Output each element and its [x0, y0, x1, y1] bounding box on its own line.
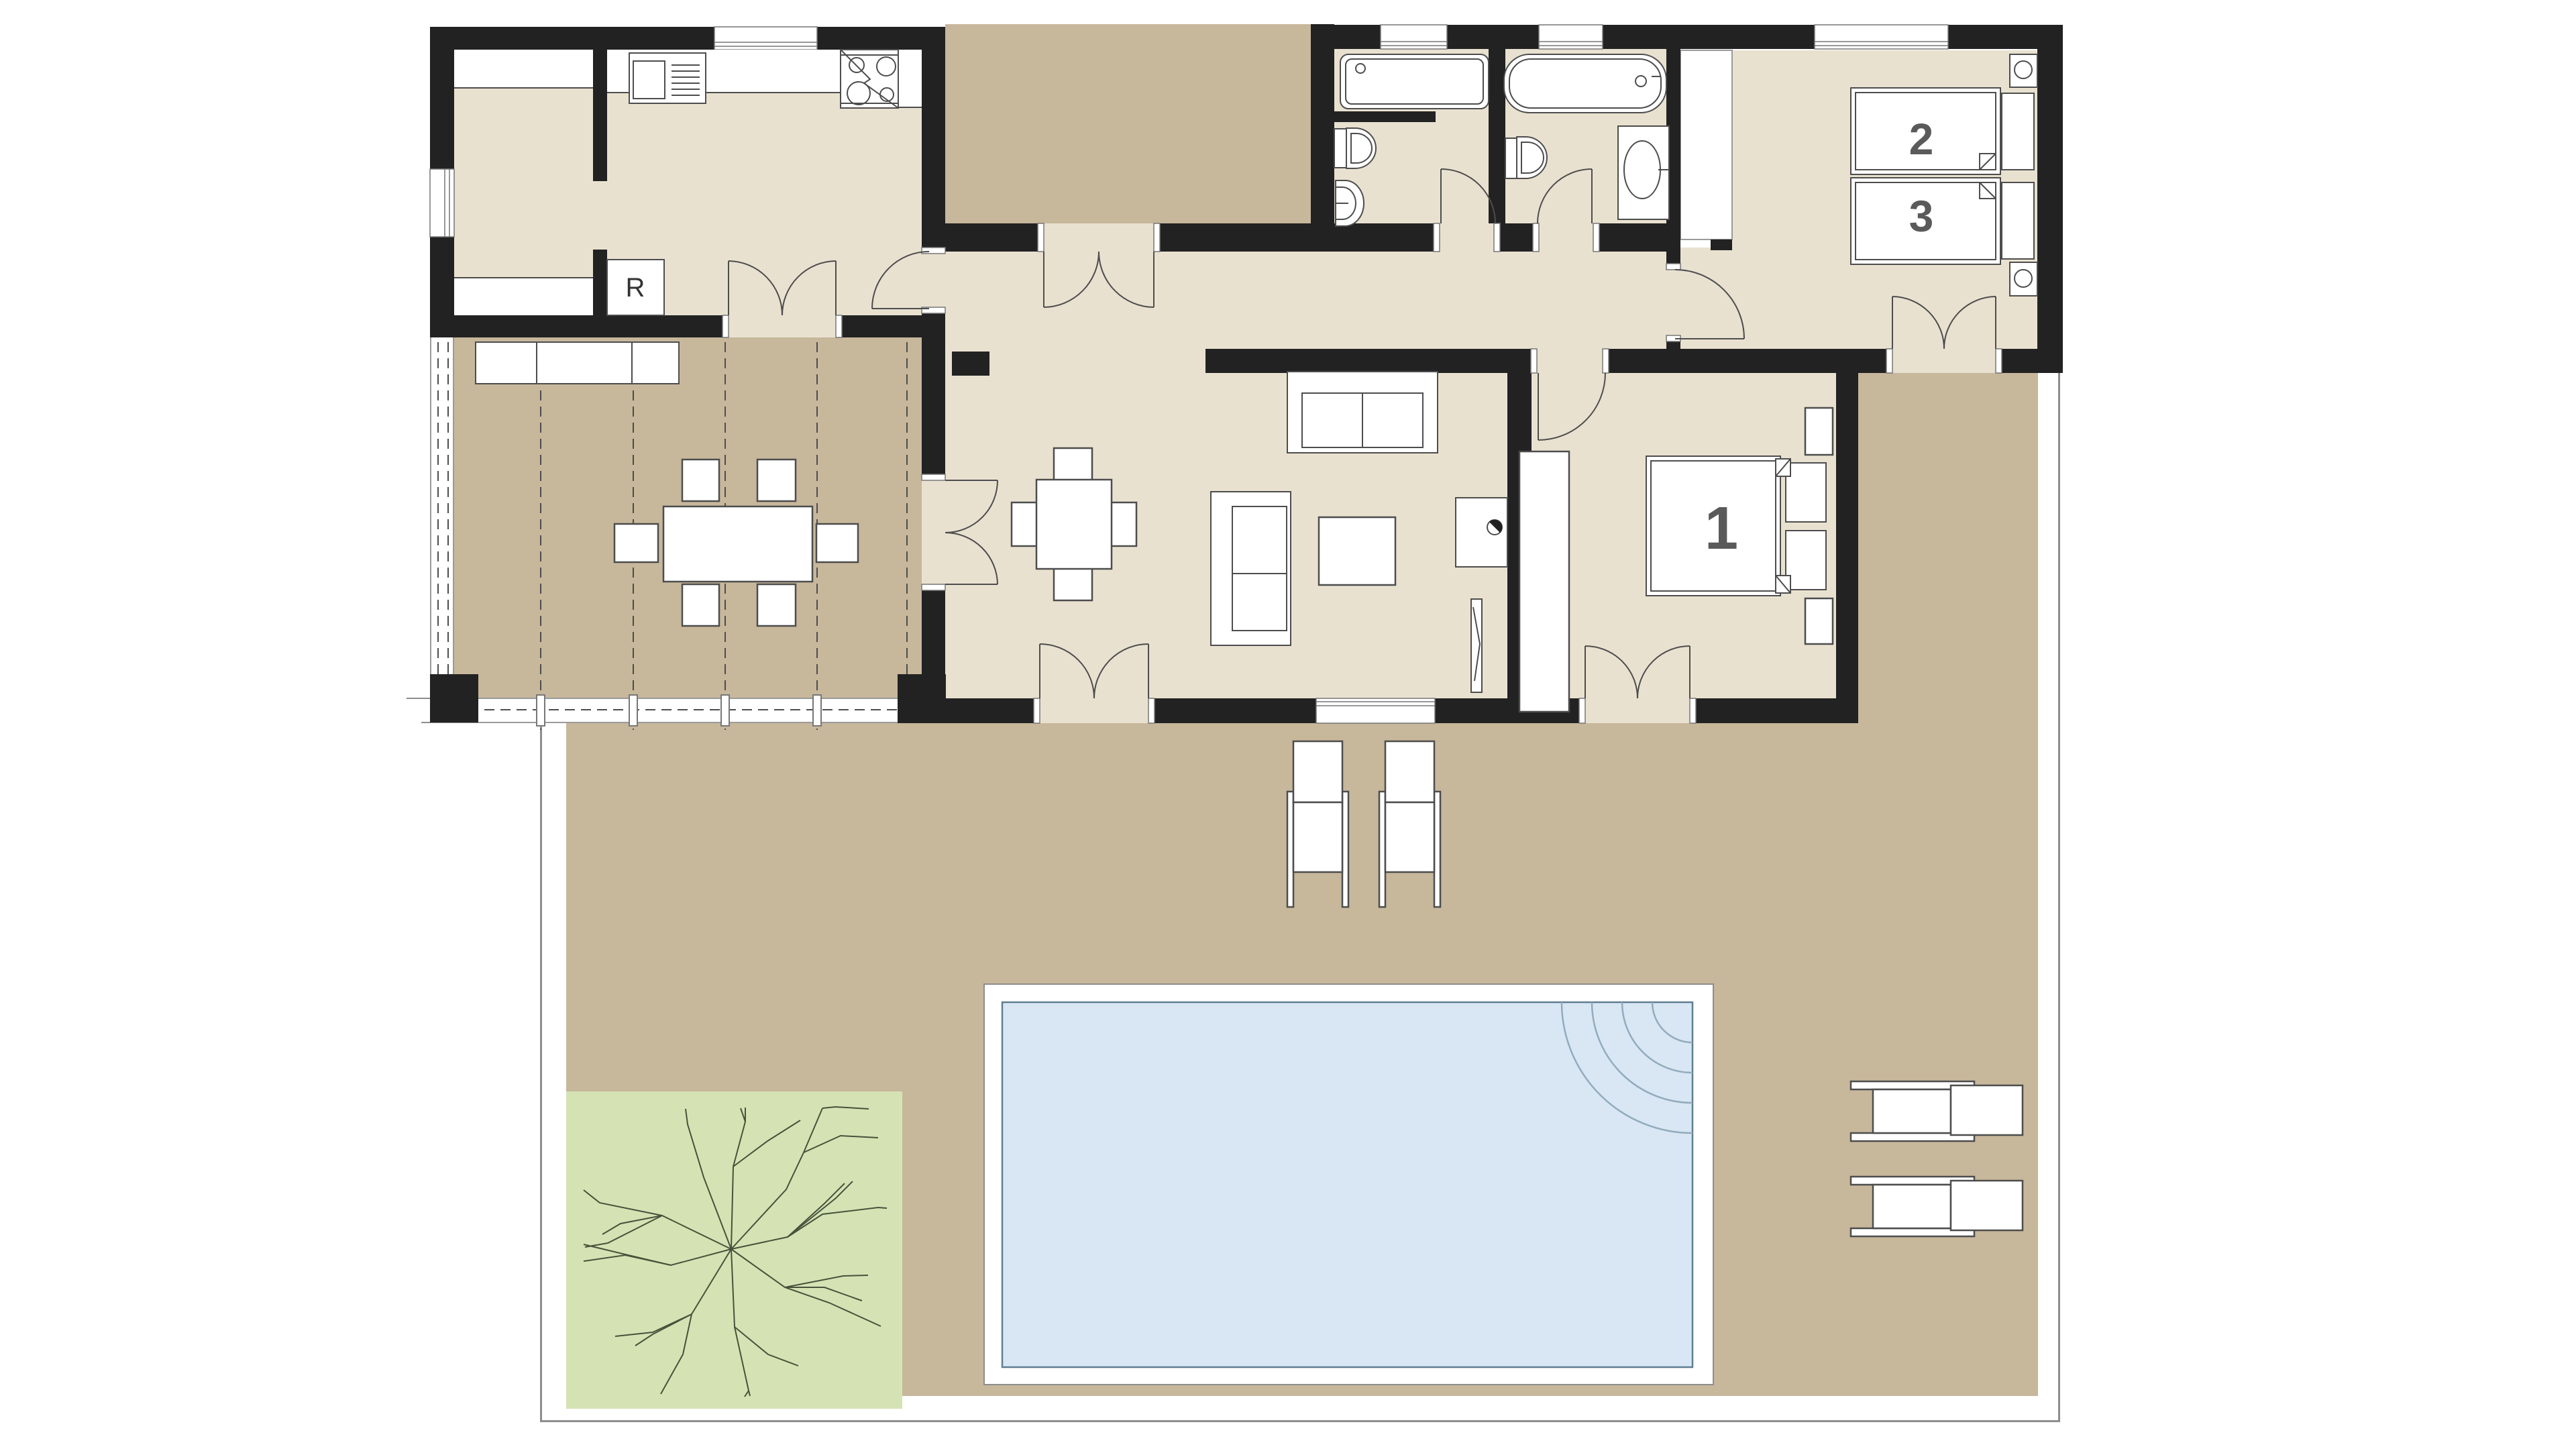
svg-text:R: R: [626, 273, 645, 303]
svg-text:2: 2: [1909, 114, 1934, 164]
svg-text:3: 3: [1909, 191, 1934, 241]
svg-text:1: 1: [1705, 495, 1738, 562]
